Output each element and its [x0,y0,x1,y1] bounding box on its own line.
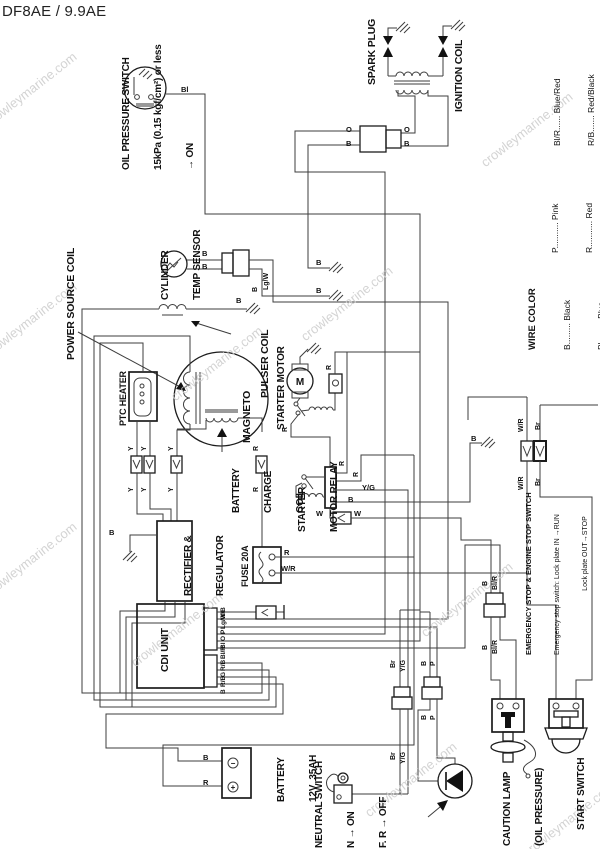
wire-label: B [348,495,353,504]
wire-label: B [202,249,207,258]
starter-motor-symbol [287,343,420,467]
wire-label: W [354,509,361,518]
power-source-coil-label: POWER SOURCE COIL [66,248,77,360]
caution-lamp-symbol [428,764,472,817]
wire-label: R [339,461,346,466]
wire-label: B [252,287,259,292]
wiring-diagram-page: − + [0,0,600,849]
wire-label: R/B [220,676,227,687]
fuse-label: FUSE 20A [241,546,251,587]
wire-label: Br [535,422,542,430]
wire-label: O [404,125,410,134]
legend-entry: Bl/R...... Blue/Red [552,48,563,146]
emergency-stop-switch-symbol [491,699,536,778]
wire-label: R [353,472,360,477]
wire-label: B [109,528,114,537]
wire-label: Lg/W [263,273,270,290]
wire-label: B [203,753,208,762]
legend-entry: R/B....... Red/Black [586,48,597,146]
wire-label: R [284,548,289,557]
neutral-switch-label: NEUTRAL SWITCH N → ON F. R → OFF [293,761,412,848]
wire-label: P [430,661,437,666]
wire-label: R [282,427,289,432]
emergency-stop-switch-label: EMERGENCY STOP & ENGINE STOP SWITCH Emer… [505,492,600,655]
cdi-unit-label: CDI UNIT [160,628,171,672]
wire-label: Y [168,487,175,492]
ptc-heater-label: PTC HEATER [119,371,129,426]
pulser-coil-label: PULSER COIL [260,330,271,398]
wiring-diagram: − + [0,0,600,849]
legend-heading: WIRE COLOR [527,288,540,350]
diagram-title: DF8AE / 9.9AE [2,3,106,20]
wire-label: Bl/R [220,646,227,659]
wire-label: R/B [220,660,227,671]
starter-motor-label: STARTER MOTOR [277,346,288,430]
wire-label: B [236,296,241,305]
wire-label: B [316,286,321,295]
ignition-coil-label: IGNITION COIL [454,40,465,112]
wire-label: O [346,125,352,134]
magneto-label: MAGNETO [242,391,253,443]
wire-label: R [326,365,333,370]
wire-label: Br [390,660,397,668]
legend-entry: R........... Red [584,184,595,253]
wire-label: W/R [281,564,296,573]
wire-label: P [220,630,227,634]
wire-label: Y [141,446,148,451]
wire-label: Br [535,478,542,486]
battery-minus: − [231,759,236,768]
wire-label: R [253,446,260,451]
wire-label: B [471,434,476,443]
wire-label: Y/G [362,483,375,492]
ignition-coil-symbol [217,72,448,634]
wire-label: W [316,509,323,518]
wire-label: Y/G [400,752,407,764]
spark-plug-label: SPARK PLUG [367,19,378,85]
legend-entry: B......... Black [562,288,573,350]
battery-plus: + [231,783,236,792]
wire-label: Y [128,487,135,492]
wire-label: B [346,139,351,148]
rectifier-regulator-label: RECTIFIER & REGULATOR [162,535,248,596]
wire-label: Y [141,487,148,492]
start-switch-symbol [545,699,587,753]
wire-label: R [253,487,260,492]
wire-label: W/R [518,418,525,432]
oil-pressure-switch-label: OIL PRESSURE SWITCH 15kPa (0.15 kgf/cm²)… [100,44,219,170]
legend-entry: Bl......... Blue [596,288,600,350]
pulser-coil-symbol [159,303,260,334]
wire-label: Y/G [400,660,407,672]
wire-label: Bl/R [492,576,499,590]
wire-label: B [421,661,428,666]
wire-label: W/R [518,476,525,490]
cylinder-temp-sensor-label: CYLINDER TEMP SENSOR [139,230,225,300]
wire-label: B [482,581,489,586]
wire-label: R [203,778,208,787]
wire-label: Bl/R [492,640,499,654]
wire-label: Bl [181,85,189,94]
wire-color-legend-group3: Bl/R...... Blue/Red R/B....... Red/Black… [530,48,600,146]
wire-label: Y [128,446,135,451]
wire-label: Y [168,446,175,451]
wire-label: B [404,139,409,148]
wire-label: O [220,636,227,641]
wire-label: Br [390,752,397,760]
wire-color-legend-group1: WIRE COLOR B......... Black Bl......... … [505,288,600,350]
wire-label: P [430,715,437,720]
wire-label: Lg/W [220,613,227,629]
wire-label: B [316,258,321,267]
wire-label: B [482,645,489,650]
start-switch-label: START SWITCH PUSH → START [555,756,600,830]
wire-label: B [202,262,207,271]
legend-entry: P........... Pink [550,184,561,253]
wire-label: B [421,715,428,720]
wire-color-legend-group2: P........... Pink R........... Red W....… [528,184,600,253]
wire-label: B [220,689,227,694]
battery-symbol: − + [222,748,251,798]
